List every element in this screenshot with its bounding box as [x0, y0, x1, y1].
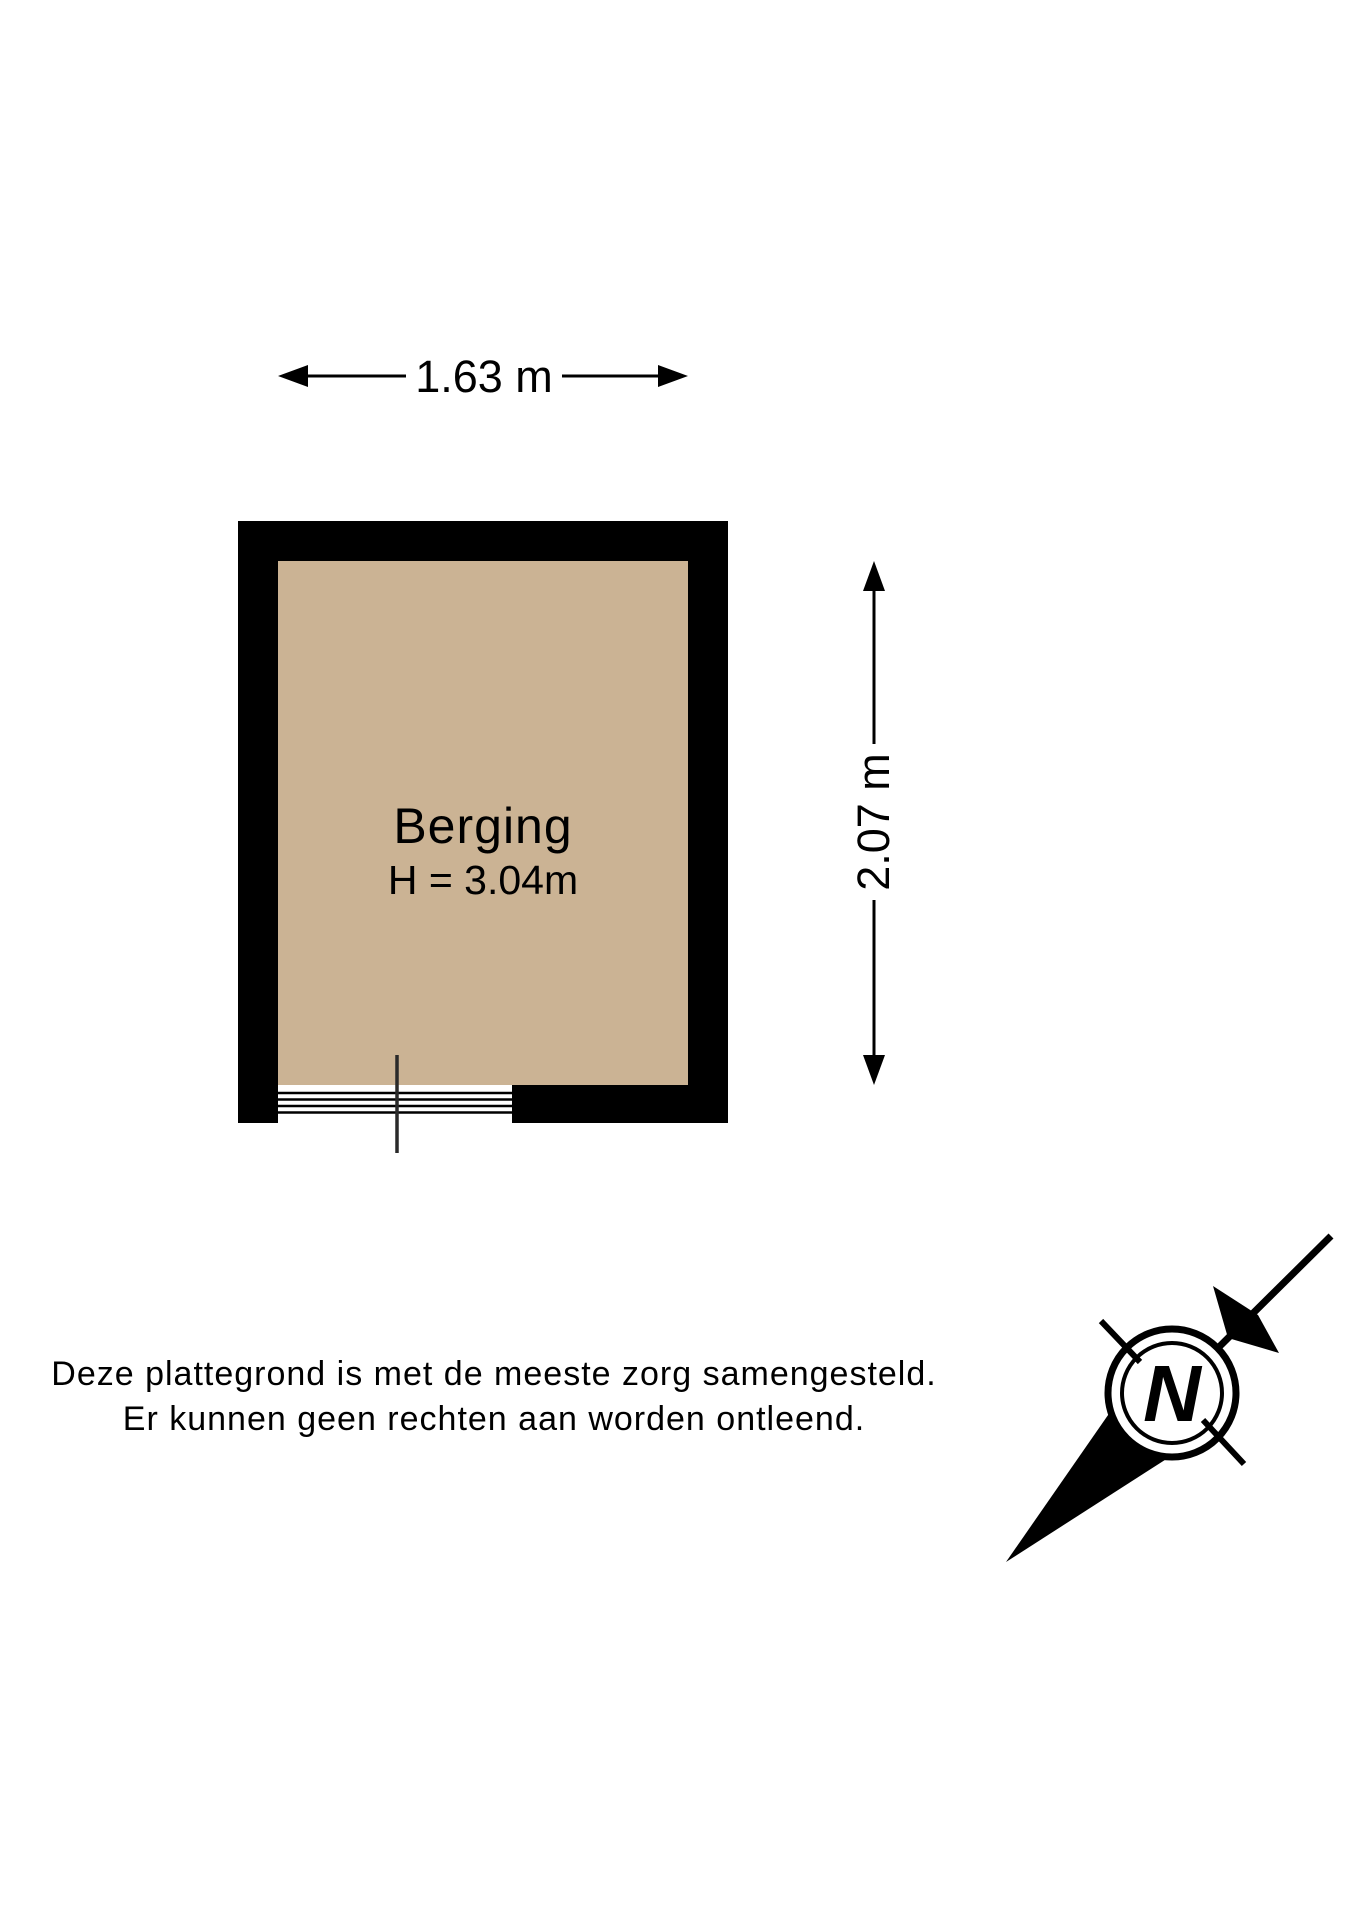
disclaimer-line1: Deze plattegrond is met de meeste zorg s… — [24, 1352, 964, 1397]
door-opening-gap — [278, 1085, 512, 1123]
compass-north-letter: N — [1143, 1349, 1203, 1438]
room-name-label: Berging — [283, 797, 683, 855]
dimension-height-label: 2.07 m — [849, 742, 899, 902]
floorplan-drawing: N — [0, 0, 1358, 1920]
arrowhead-left-icon — [278, 365, 308, 387]
arrowhead-up-icon — [863, 561, 885, 591]
north-compass-icon: N — [1006, 1236, 1331, 1562]
room-ceiling-height-label: H = 3.04m — [283, 857, 683, 904]
floorplan-page: N 1.63 m 2.07 m Berging H = 3.04m Deze p… — [0, 0, 1358, 1920]
disclaimer: Deze plattegrond is met de meeste zorg s… — [24, 1352, 964, 1442]
arrowhead-down-icon — [863, 1055, 885, 1085]
arrowhead-right-icon — [658, 365, 688, 387]
dimension-width-label: 1.63 m — [404, 351, 564, 403]
disclaimer-line2: Er kunnen geen rechten aan worden ontlee… — [24, 1397, 964, 1442]
